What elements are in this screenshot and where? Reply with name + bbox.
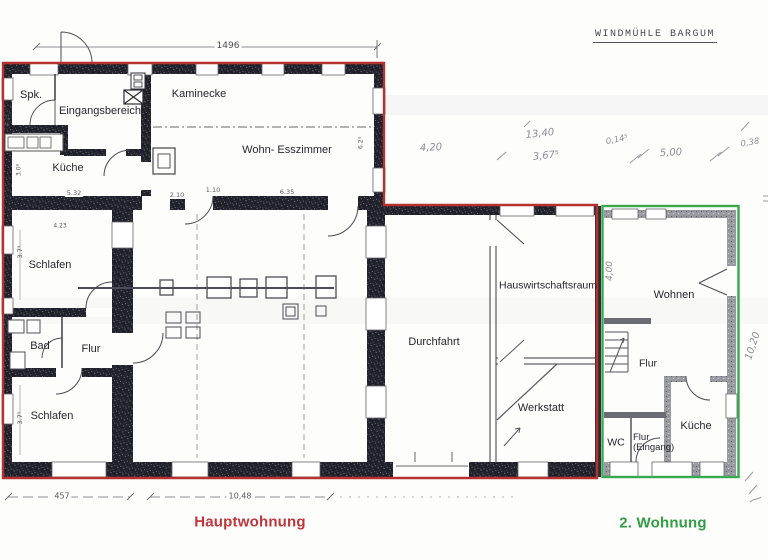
dim-423: 4.23	[51, 223, 68, 230]
dim-308: 3.0⁸	[16, 162, 23, 178]
pencil-dim-420: 4,20	[420, 142, 443, 154]
staircase	[605, 332, 628, 372]
dim-375-b: 3.7⁵	[16, 410, 24, 427]
fireplace-icon	[124, 73, 145, 104]
plan-title: WINDMÜHLE BARGUM	[593, 29, 717, 43]
floorplan-scan: WINDMÜHLE BARGUM Spk. Eingangsbereich Ka…	[0, 0, 768, 560]
room-label-werkstatt: Werkstatt	[518, 403, 564, 415]
room-label-kueche-2: Küche	[680, 421, 711, 433]
legend-zweite-wohnung: 2. Wohnung	[619, 515, 707, 532]
dim-total-width: 1496	[215, 41, 242, 51]
legend-hauptwohnung: Hauptwohnung	[194, 514, 306, 531]
room-label-kueche-haupt: Küche	[52, 163, 83, 175]
room-label-kaminecke: Kaminecke	[172, 89, 226, 101]
room-label-schlafen-1: Schlafen	[29, 260, 72, 272]
dim-210: 2.10	[168, 191, 186, 199]
room-label-eingangsbereich: Eingangsbereich	[59, 106, 141, 118]
room-label-flur-eingang-line2: (Eingang)	[633, 443, 674, 453]
room-label-flur-eingang: Flur (Eingang)	[633, 433, 674, 453]
hauptwohnung-outline	[3, 63, 597, 478]
werkstatt-door-gap	[498, 356, 524, 366]
dim-bottom-left: 457	[52, 492, 71, 501]
room-label-spk: Spk.	[20, 90, 42, 102]
room-label-schlafen-2: Schlafen	[31, 411, 74, 423]
werkstatt-annotations	[497, 340, 557, 446]
pencil-dim-500: 5,00	[660, 147, 683, 159]
kitchen-counter	[5, 134, 63, 151]
dim-bottom-main: 10,48	[227, 492, 254, 501]
room-label-flur-2: Flur	[639, 358, 657, 369]
floorplan-drawing	[0, 0, 768, 560]
dim-110: 1.10	[204, 186, 222, 194]
room-label-bad: Bad	[30, 341, 50, 353]
walls-hauptwohnung	[3, 64, 601, 477]
tiled-stove-icon	[153, 148, 175, 174]
hwr-door-gap	[488, 220, 498, 246]
room-label-wc: WC	[607, 437, 625, 448]
dim-532: 5.32	[65, 189, 83, 197]
dim-635: 6.35	[278, 188, 296, 196]
dim-375-a: 3.7⁵	[16, 244, 24, 261]
room-label-wohn-esszimmer: Wohn- Esszimmer	[242, 145, 332, 157]
room-label-durchfahrt: Durchfahrt	[408, 337, 459, 349]
room-label-flur-haupt: Flur	[82, 344, 101, 356]
dim-411: 4.11	[4, 111, 11, 128]
room-label-wohnen: Wohnen	[654, 290, 695, 302]
dim-620: 6.2⁰	[358, 135, 365, 151]
pencil-dim-400: 4,00	[605, 261, 615, 281]
room-label-hauswirtschaftsraum: Hauswirtschaftsraum	[499, 280, 597, 291]
